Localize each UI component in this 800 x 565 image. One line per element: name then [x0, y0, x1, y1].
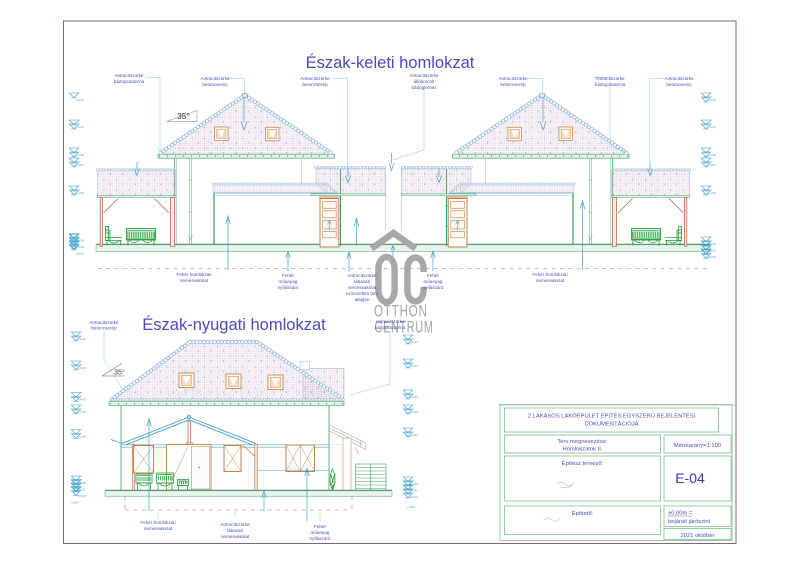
svg-text:színezetlen terv: színezetlen terv [346, 291, 379, 296]
svg-text:bejárati járószint: bejárati járószint [668, 519, 711, 525]
svg-text:35°: 35° [177, 111, 190, 121]
svg-text:+3,63: +3,63 [708, 163, 716, 167]
svg-text:Antracitszürke: Antracitszürke [595, 76, 625, 81]
svg-text:+5,04: +5,04 [76, 125, 84, 129]
svg-text:+4,00: +4,00 [78, 398, 86, 402]
svg-text:Antracitszürke: Antracitszürke [300, 76, 330, 81]
svg-text:műanyag: műanyag [311, 530, 330, 535]
svg-text:Méretarány=1:100: Méretarány=1:100 [674, 443, 721, 449]
svg-text:betoncserép: betoncserép [666, 82, 692, 87]
svg-text:betoncserép: betoncserép [202, 82, 228, 87]
svg-text:lábazati: lábazati [227, 528, 243, 533]
svg-text:2 LAKÁSOS LAKÓÉPÜLET ÉPÍTÉS EG: 2 LAKÁSOS LAKÓÉPÜLET ÉPÍTÉS EGYSZERŰ BEJ… [528, 413, 696, 420]
svg-text:+0,06: +0,06 [71, 501, 79, 505]
svg-text:+6,28: +6,28 [708, 98, 716, 102]
svg-text:Antracitszürke: Antracitszürke [409, 73, 439, 78]
svg-text:±0,00: ±0,00 [410, 495, 418, 499]
svg-text:+5,04: +5,04 [708, 125, 716, 129]
svg-text:Fehér homlokzati: Fehér homlokzati [532, 272, 567, 277]
svg-text:nemesvakolat: nemesvakolat [221, 534, 250, 539]
svg-text:+4,25: +4,25 [78, 410, 86, 414]
svg-text:Fehér homlokzati: Fehér homlokzati [140, 520, 175, 525]
svg-text:alapján: alapján [355, 297, 370, 302]
svg-text:bádogcsatorna: bádogcsatorna [114, 79, 145, 84]
svg-text:bádoglemez: bádoglemez [411, 85, 437, 90]
svg-text:+6,00: +6,00 [410, 364, 418, 368]
svg-text:E-04: E-04 [675, 470, 705, 486]
svg-text:±0,00m =: ±0,00m = [668, 511, 693, 517]
svg-text:Antracitszürke: Antracitszürke [375, 319, 405, 324]
svg-text:nemesvakolat: nemesvakolat [348, 285, 377, 290]
svg-text:Terv megnevezése:: Terv megnevezése: [557, 439, 608, 445]
svg-text:bádogcsatorna: bádogcsatorna [375, 325, 406, 330]
svg-text:DOKUMENTÁCIÓJA: DOKUMENTÁCIÓJA [584, 421, 638, 428]
svg-text:+2,06: +2,06 [410, 410, 418, 414]
svg-text:Fehér: Fehér [282, 273, 294, 278]
svg-text:betoncserép: betoncserép [302, 82, 328, 87]
svg-text:+0,20: +0,20 [76, 245, 84, 249]
svg-text:±0,00: ±0,00 [78, 494, 86, 498]
svg-text:Fehér homlokzati: Fehér homlokzati [176, 272, 211, 277]
svg-text:+2,80: +2,80 [76, 191, 84, 195]
svg-text:35°: 35° [114, 368, 125, 377]
svg-text:állókorcolt: állókorcolt [414, 79, 435, 84]
svg-text:nyílászáró: nyílászáró [310, 536, 331, 541]
svg-text:+6,28: +6,28 [76, 98, 84, 102]
svg-text:Fehér: Fehér [314, 524, 326, 529]
svg-text:+0,20: +0,20 [708, 249, 716, 253]
svg-text:2021 október: 2021 október [681, 533, 715, 539]
svg-text:nemesvakolat: nemesvakolat [180, 278, 209, 283]
svg-text:+2,95: +2,95 [410, 433, 418, 437]
svg-text:Antracitszürke: Antracitszürke [200, 76, 230, 81]
svg-text:lábazati: lábazati [354, 279, 370, 284]
svg-text:Homlokzatok II.: Homlokzatok II. [563, 447, 603, 453]
svg-text:+6,34: +6,34 [410, 340, 418, 344]
svg-text:+6,25: +6,25 [78, 337, 86, 341]
svg-text:nyílászáró: nyílászáró [278, 285, 299, 290]
svg-text:Fehér: Fehér [427, 273, 439, 278]
svg-text:műanyag: műanyag [279, 279, 298, 284]
svg-text:+3,88: +3,88 [708, 153, 716, 157]
svg-text:+0,35: +0,35 [708, 242, 716, 246]
svg-text:Észak-nyugati homlokzat: Észak-nyugati homlokzat [142, 315, 326, 334]
svg-text:Antracitszürke: Antracitszürke [347, 273, 377, 278]
svg-text:±0,00: ±0,00 [708, 255, 716, 259]
svg-text:+0,35: +0,35 [78, 481, 86, 485]
svg-text:±0,00: ±0,00 [76, 252, 84, 256]
svg-text:-0,05: -0,05 [78, 488, 85, 492]
svg-text:bádogcsatorna: bádogcsatorna [595, 82, 626, 87]
svg-text:+4,54: +4,54 [78, 366, 86, 370]
svg-text:nemesvakolat: nemesvakolat [144, 526, 173, 531]
svg-text:Észak-keleti homlokzat: Észak-keleti homlokzat [306, 53, 475, 72]
svg-text:Antracitszürke: Antracitszürke [114, 73, 144, 78]
svg-text:+3,63: +3,63 [76, 163, 84, 167]
svg-text:+0,35: +0,35 [76, 239, 84, 243]
svg-text:+2,25: +2,25 [410, 395, 418, 399]
svg-text:nemesvakolat: nemesvakolat [536, 278, 565, 283]
svg-text:Építtető:: Építtető: [572, 510, 594, 517]
svg-text:+0,00: +0,00 [407, 505, 415, 509]
svg-text:betoncserép: betoncserép [500, 82, 526, 87]
svg-text:+1,95: +1,95 [78, 435, 86, 439]
svg-text:+0,35: +0,35 [410, 482, 418, 486]
svg-text:+3,88: +3,88 [76, 153, 84, 157]
svg-text:+2,80: +2,80 [708, 191, 716, 195]
svg-text:Antracitszürke: Antracitszürke [498, 76, 528, 81]
svg-text:Építész tervező:: Építész tervező: [562, 460, 604, 467]
svg-text:Antracitszürke: Antracitszürke [664, 76, 694, 81]
svg-text:nyílászáró: nyílászáró [423, 285, 444, 290]
svg-text:műanyag: műanyag [424, 279, 443, 284]
svg-text:Antracitszürke: Antracitszürke [220, 522, 250, 527]
svg-text:Antracitszürke: Antracitszürke [89, 320, 119, 325]
svg-text:betoncserép: betoncserép [91, 326, 117, 331]
svg-text:-0,05: -0,05 [410, 489, 417, 493]
